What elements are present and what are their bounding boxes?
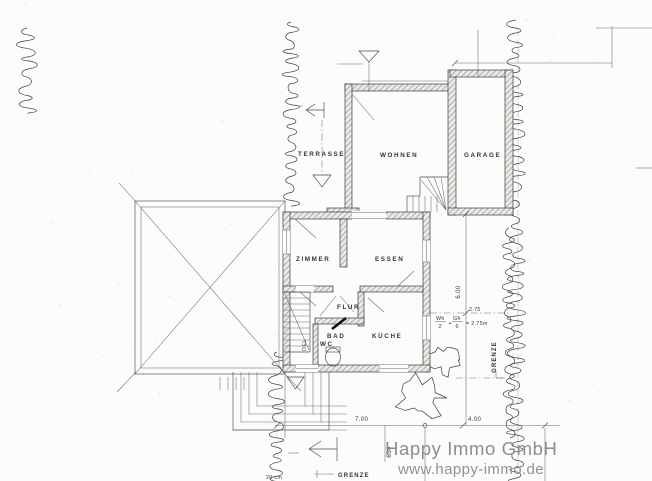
vegetation-northwest-tree xyxy=(16,28,37,113)
formula-numerator-2: Gh xyxy=(453,316,461,322)
room-label-kueche: KÜCHE xyxy=(372,331,402,340)
formula-denominator-1: 2 xyxy=(439,324,442,330)
dim-setback-line: 2.75 xyxy=(469,307,481,313)
room-label-wc: WC xyxy=(320,341,334,348)
room-label-zimmer: ZIMMER xyxy=(296,256,330,263)
bush-south xyxy=(395,373,446,419)
toilet xyxy=(326,347,341,366)
grenze-east-group: GRENZE xyxy=(492,341,505,378)
room-label-essen: ESSEN xyxy=(375,256,404,263)
vegetation-east-inner xyxy=(502,228,515,438)
plot-structure-square xyxy=(117,183,301,392)
dim-east-setback: 4.00 xyxy=(468,417,482,423)
paper-noise xyxy=(0,3,646,476)
room-label-oel: OEL xyxy=(302,339,308,351)
grenze-south-label: GRENZE xyxy=(338,473,370,479)
room-label-flur: FLUR xyxy=(337,304,360,311)
formula-denominator-2: 6 xyxy=(456,324,459,330)
tree-size-note: 20 cm xyxy=(266,475,282,481)
vegetation-west-upper xyxy=(282,22,299,206)
room-label-bad: BAD xyxy=(327,333,345,340)
exterior-steps xyxy=(220,372,347,430)
dimension-lines xyxy=(274,26,652,481)
elevation-marker-icon xyxy=(359,51,379,62)
direction-arrow-icon xyxy=(298,102,324,118)
room-label-terrasse: TERRASSE xyxy=(298,151,345,158)
direction-arrow-icon xyxy=(288,437,337,461)
formula-result: = 2.75m xyxy=(466,321,488,327)
watermark-company: Happy Immo GmbH xyxy=(385,438,557,459)
setback-formula: Wh 2 + Gh 6 = 2.75m xyxy=(435,316,488,330)
watermark-website: www.happy-immo.de xyxy=(397,461,544,478)
bush-east xyxy=(427,347,460,377)
grenze-south-group: GRENZE xyxy=(314,470,370,479)
room-label-garage: GARAGE xyxy=(464,152,501,159)
scanned-floor-plan: 7.00 4.00 650 6.00 2.75 Wh 2 + Gh 6 = 2.… xyxy=(0,0,652,481)
room-label-wohnen: WOHNEN xyxy=(380,152,418,159)
stairs-wohnen xyxy=(407,177,448,212)
formula-numerator-1: Wh xyxy=(436,316,445,322)
entry-arrow xyxy=(288,437,337,461)
dim-house-depth: 6.00 xyxy=(456,285,462,299)
dim-house-width: 7.00 xyxy=(355,417,369,423)
terrasse-axis xyxy=(298,102,331,187)
elevation-marker-icon xyxy=(313,175,331,187)
grenze-east-label: GRENZE xyxy=(492,341,498,373)
formula-plus: + xyxy=(449,321,452,327)
